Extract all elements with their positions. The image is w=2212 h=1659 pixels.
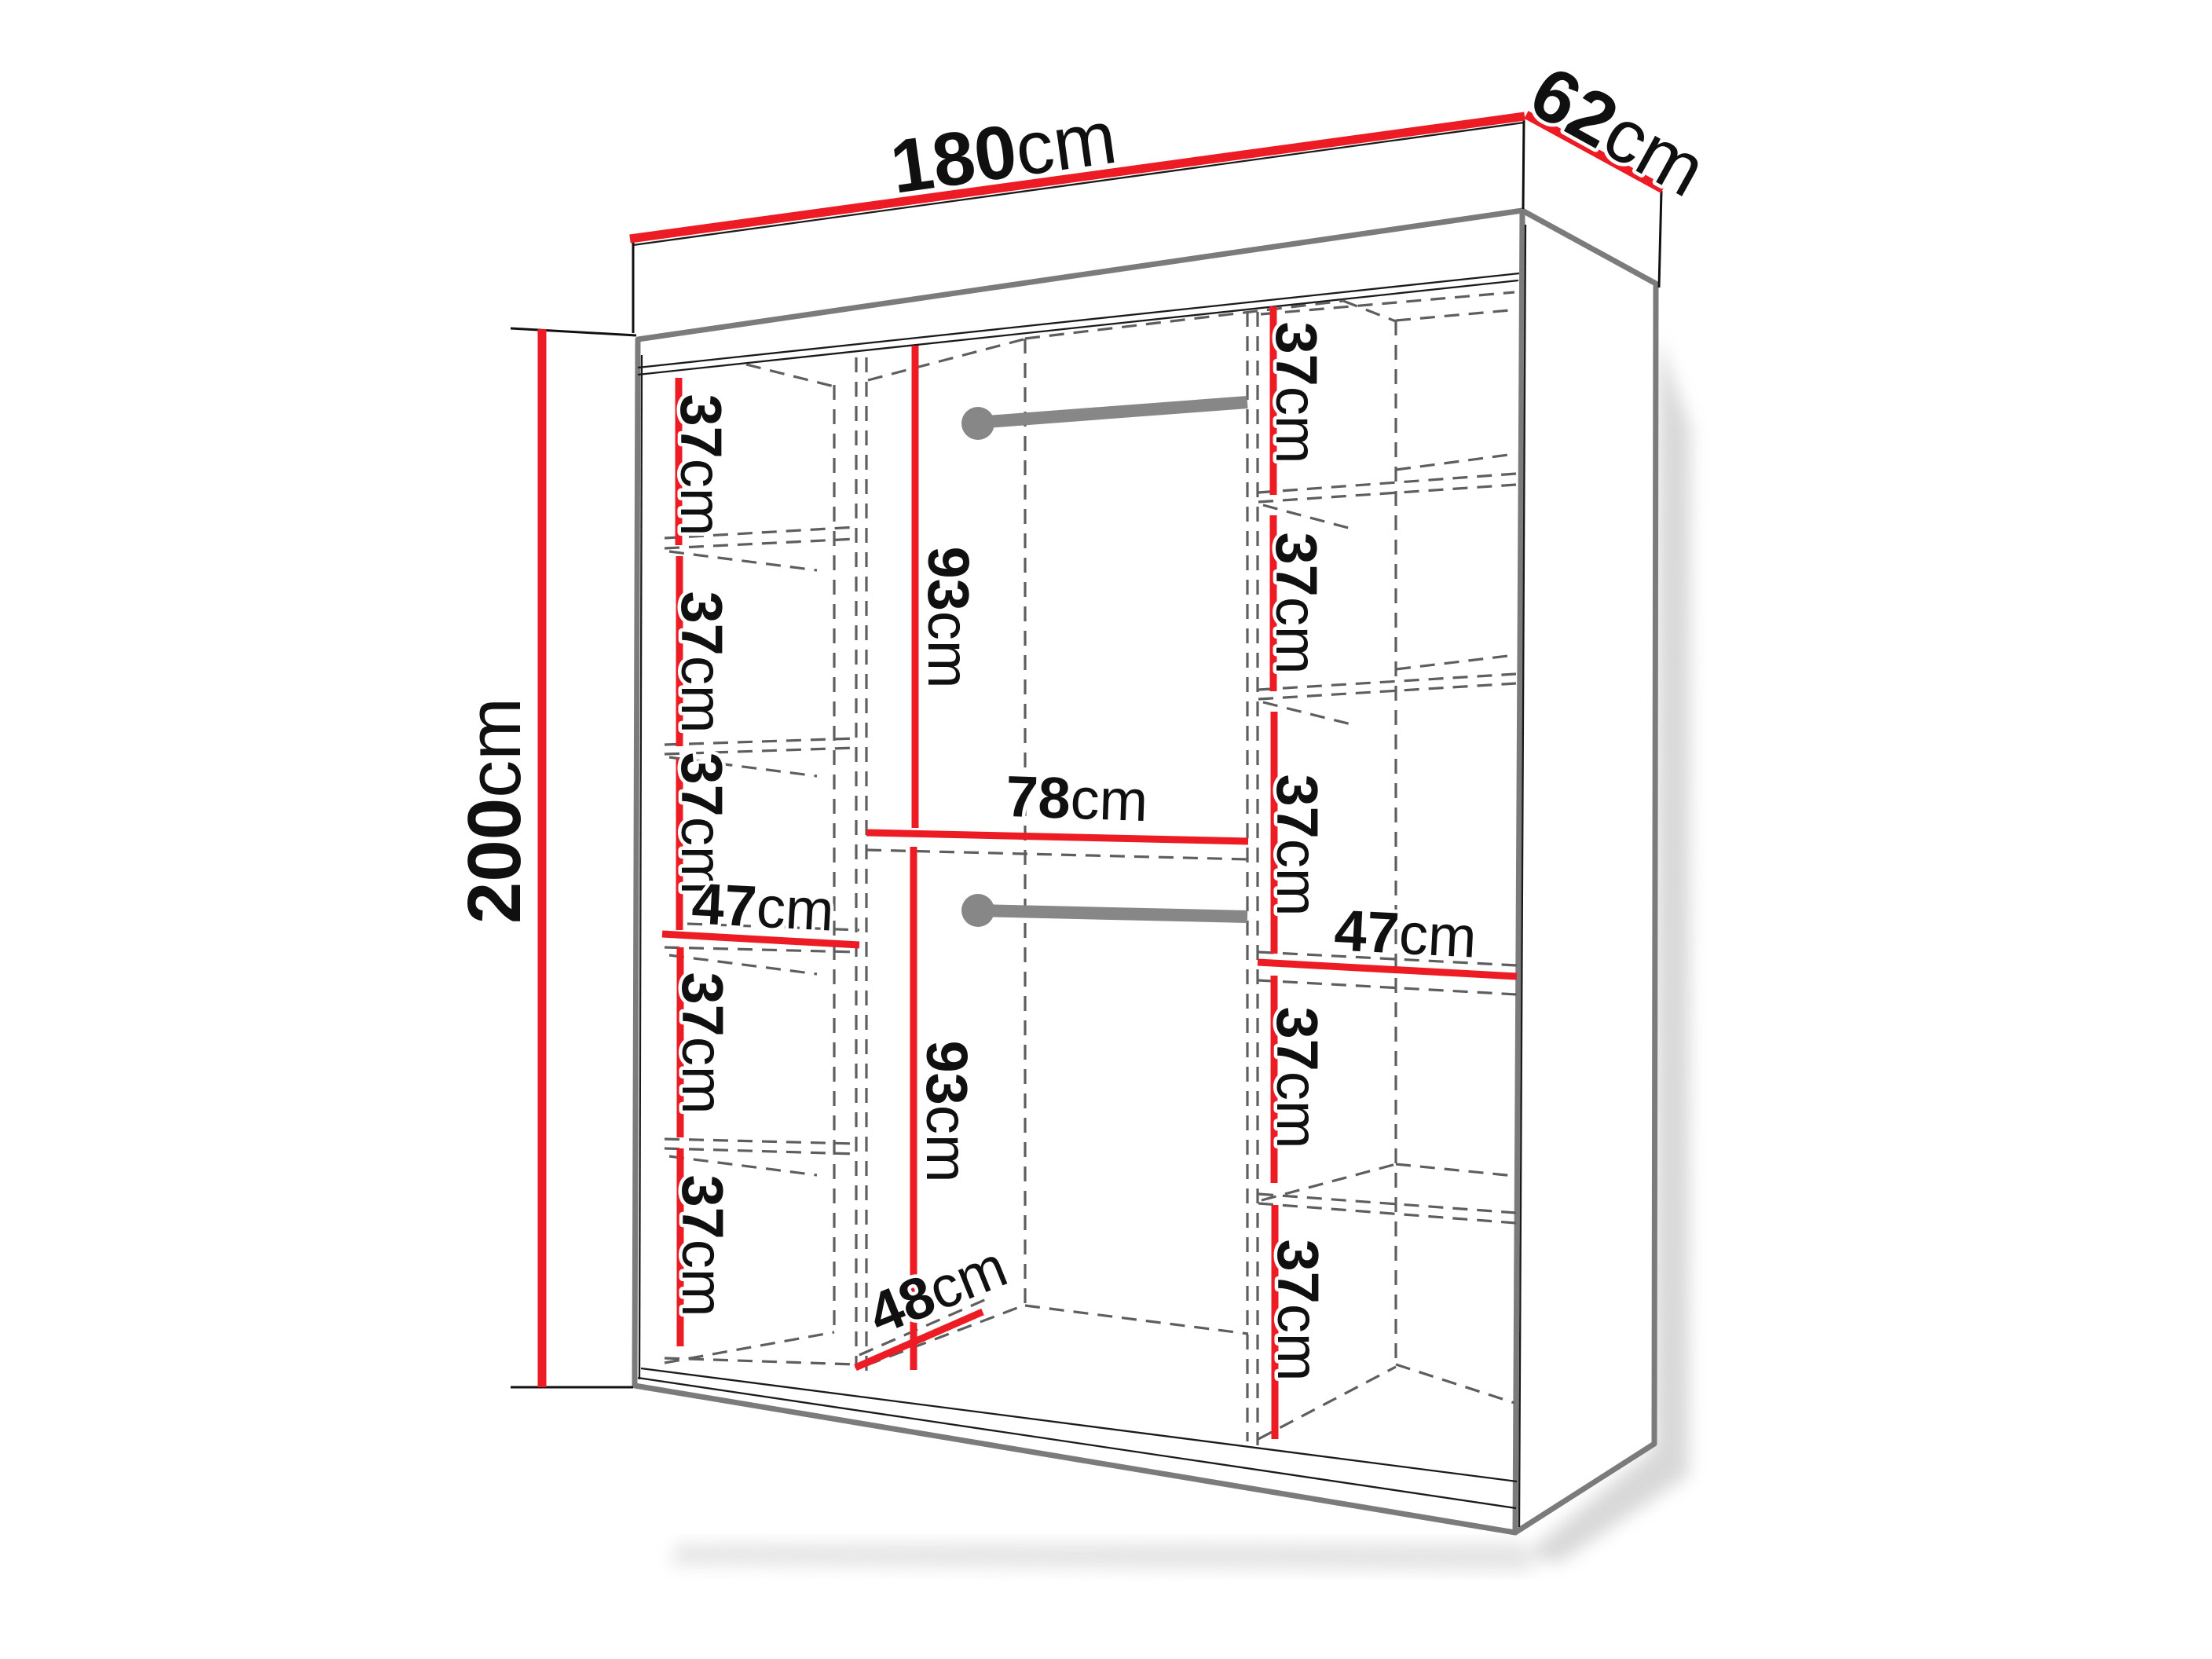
- label-overall-depth: 62cm: [1517, 50, 1719, 213]
- label-left-section-2: 37cm: [669, 591, 734, 734]
- diagram-canvas: 180cm 62cm 200cm 37cm 37cm 37cm 47cm 37c…: [0, 0, 2212, 1659]
- label-upper-hanging-height: 93cm: [916, 547, 981, 689]
- label-right-section-3: 37cm: [1265, 775, 1330, 917]
- label-right-section-5: 37cm: [1265, 1240, 1331, 1382]
- label-overall-height: 200cm: [452, 698, 537, 924]
- label-left-column-width: 47cm: [690, 870, 836, 943]
- label-left-section-1: 37cm: [668, 394, 734, 537]
- label-left-section-5: 37cm: [670, 1175, 735, 1317]
- label-right-section-1: 37cm: [1264, 322, 1329, 464]
- label-right-section-4: 37cm: [1265, 1007, 1330, 1149]
- cabinet-side-panel: [1515, 211, 1656, 1533]
- label-right-column-width: 47cm: [1333, 897, 1478, 969]
- label-right-section-2: 37cm: [1264, 533, 1329, 675]
- label-lower-hanging-height: 93cm: [914, 1041, 980, 1183]
- label-left-section-4: 37cm: [670, 972, 735, 1115]
- wardrobe-dimension-diagram: 180cm 62cm 200cm 37cm 37cm 37cm 47cm 37c…: [0, 0, 2212, 1659]
- label-middle-shelf-width: 78cm: [1005, 764, 1149, 833]
